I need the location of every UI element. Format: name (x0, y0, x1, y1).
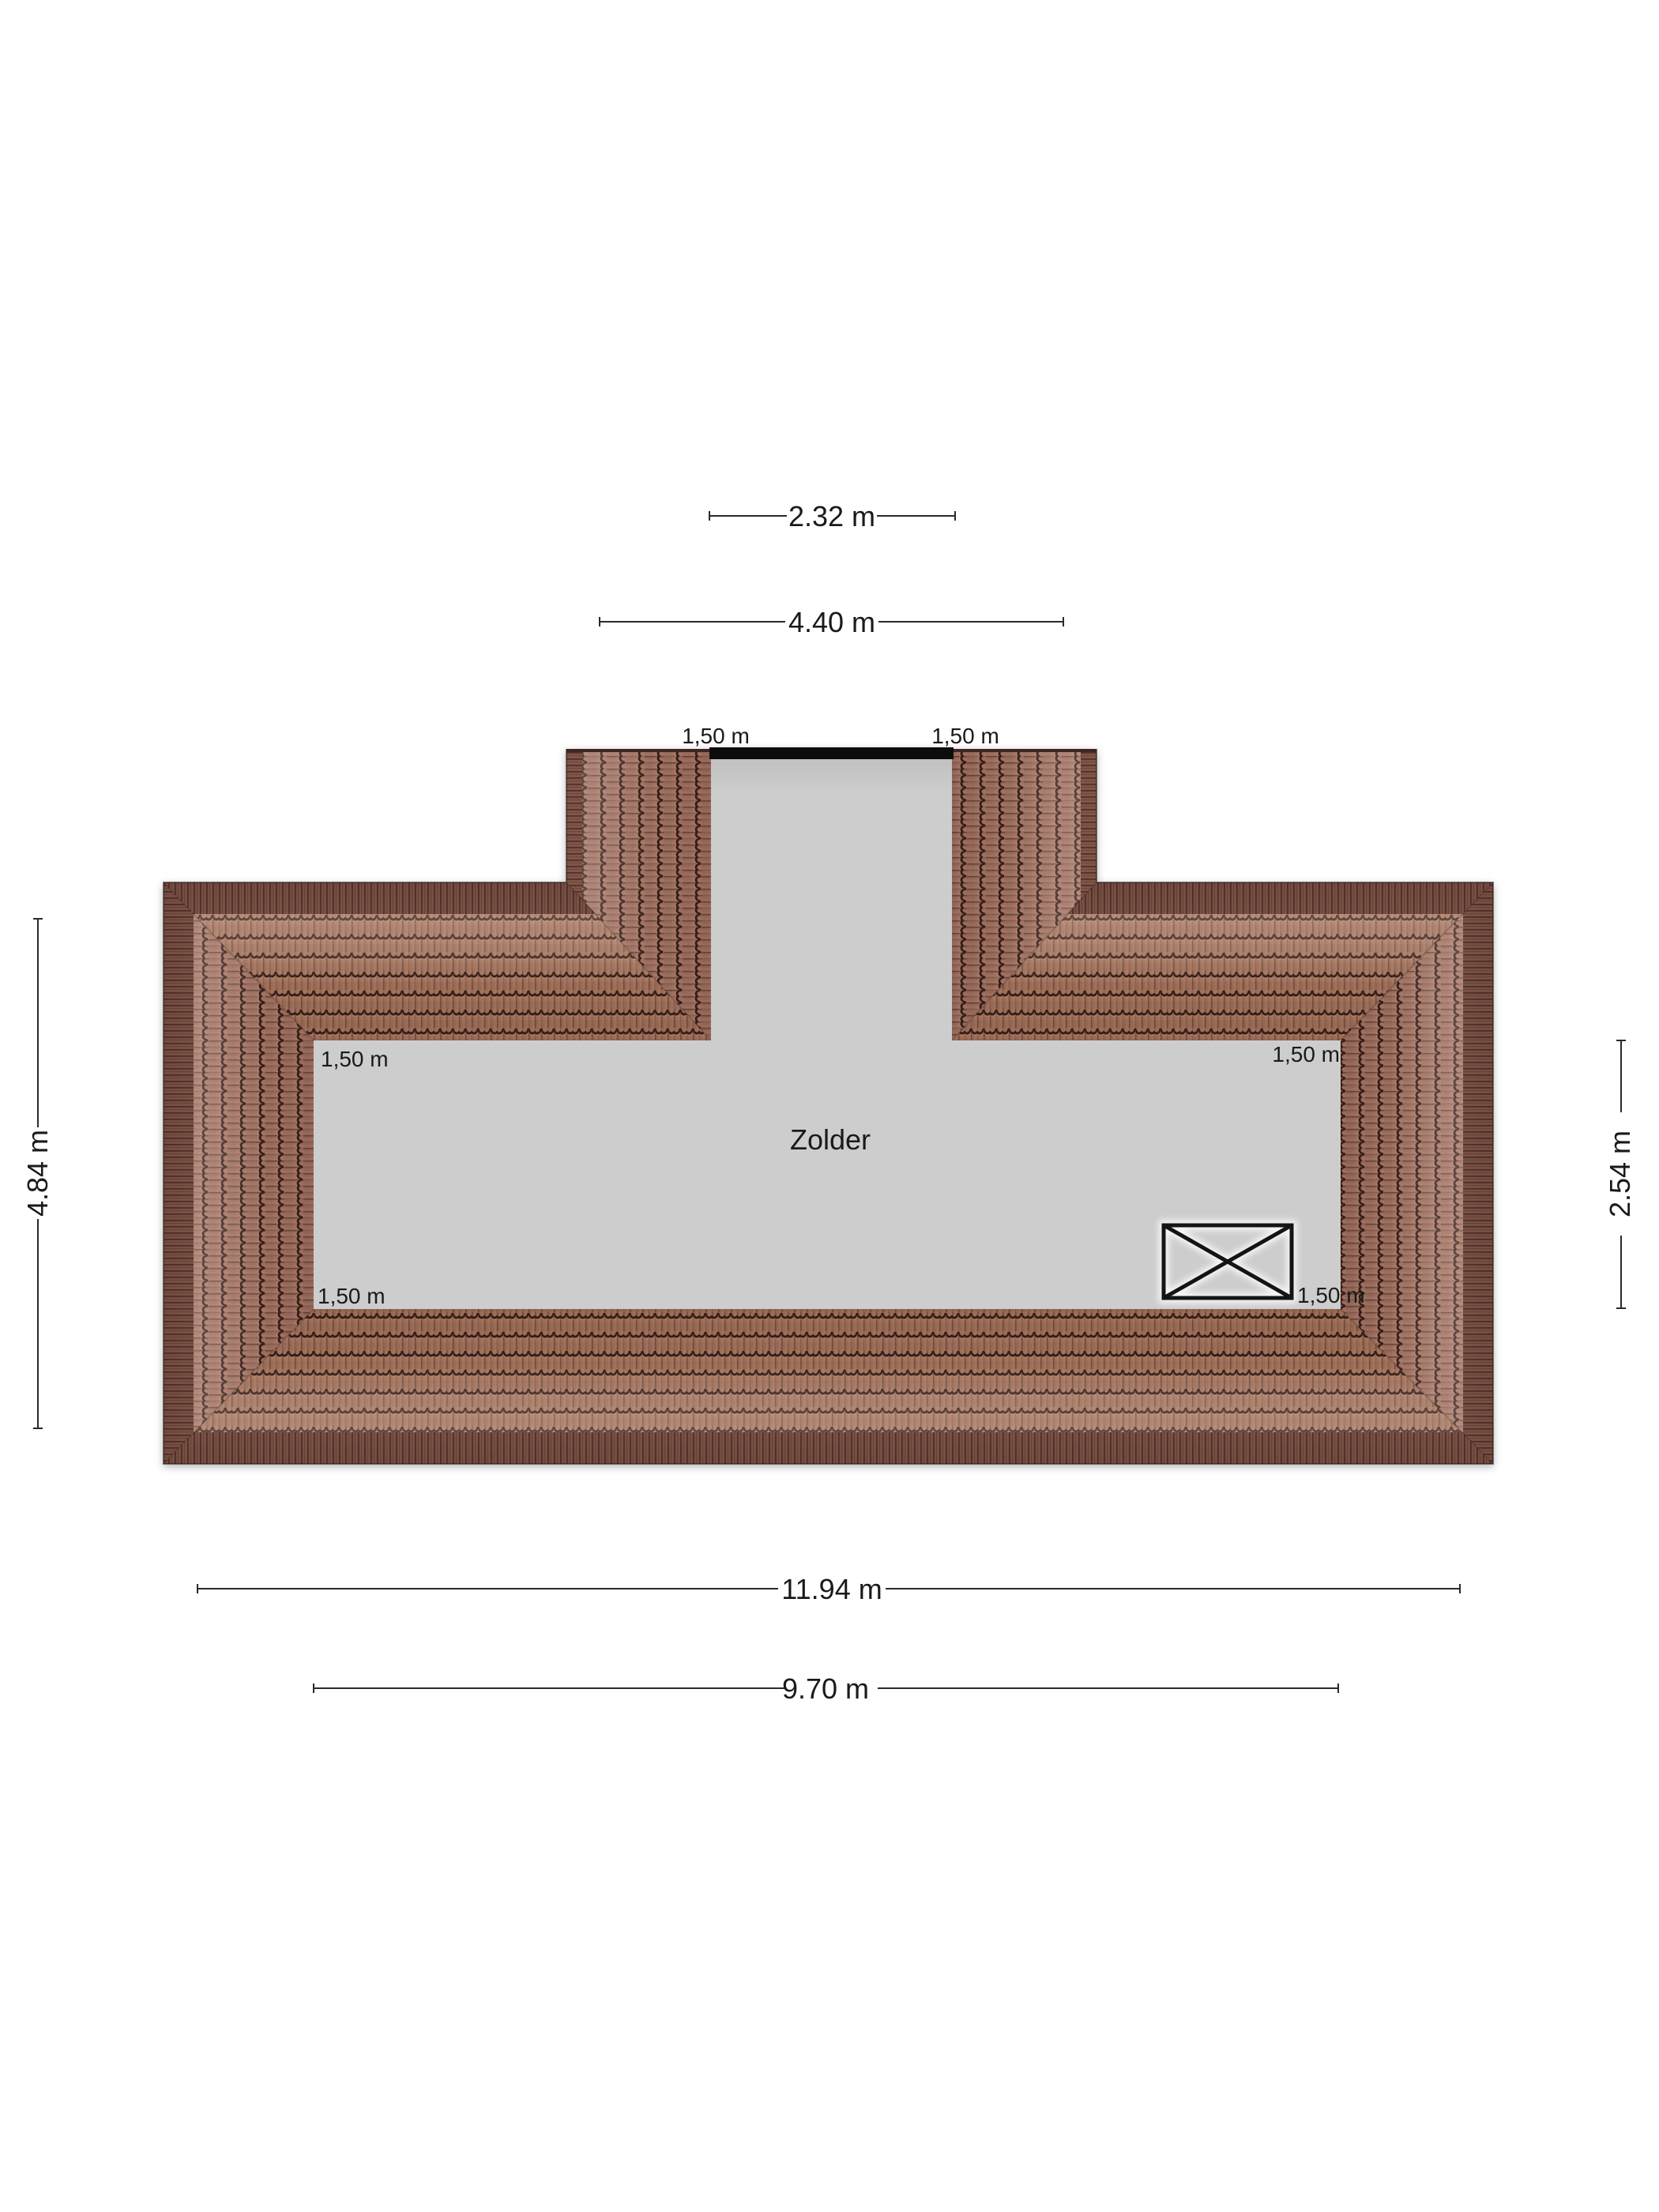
svg-text:Zolder: Zolder (790, 1123, 871, 1156)
svg-text:1,50 m: 1,50 m (1272, 1042, 1340, 1066)
svg-text:4.40 m: 4.40 m (788, 606, 875, 638)
svg-text:2.32 m: 2.32 m (788, 500, 875, 532)
svg-text:9.70 m: 9.70 m (782, 1672, 869, 1705)
svg-text:1,50 m: 1,50 m (318, 1284, 386, 1308)
svg-text:1,50 m: 1,50 m (931, 724, 999, 748)
svg-text:1,50 m: 1,50 m (1297, 1283, 1365, 1307)
svg-text:4.84 m: 4.84 m (21, 1130, 54, 1217)
svg-text:1,50 m: 1,50 m (321, 1047, 389, 1071)
svg-text:2.54 m: 2.54 m (1604, 1130, 1636, 1217)
svg-text:11.94 m: 11.94 m (781, 1573, 882, 1605)
svg-text:1,50 m: 1,50 m (682, 724, 750, 748)
